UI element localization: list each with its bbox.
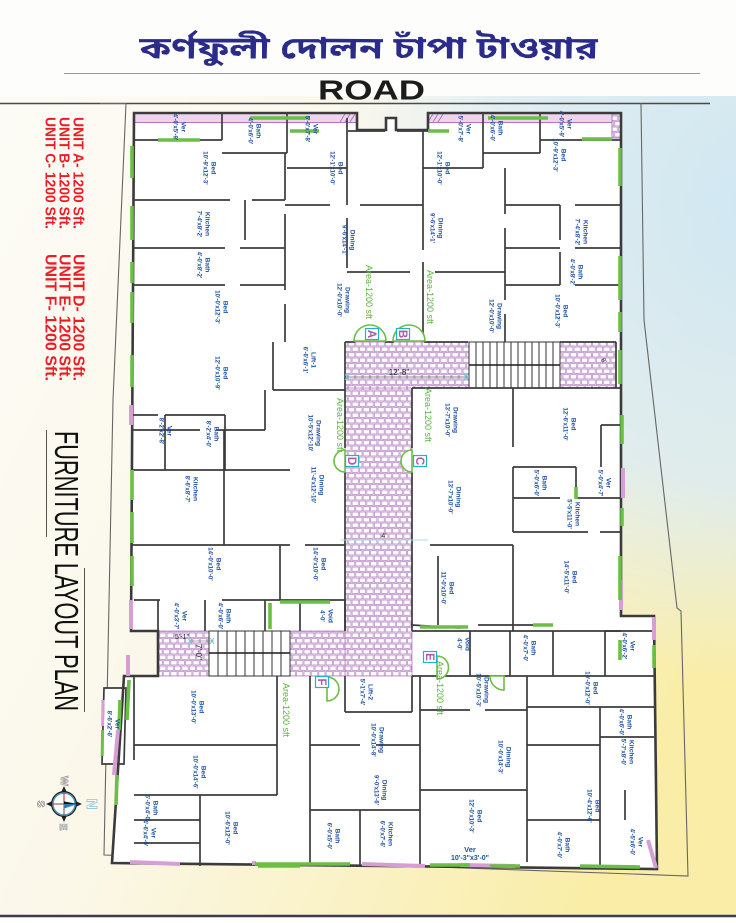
svg-text:Bath: Bath bbox=[541, 476, 548, 491]
svg-text:Dining: Dining bbox=[349, 230, 356, 251]
svg-text:Ver: Ver bbox=[629, 641, 636, 652]
svg-text:7'-4'x8'-2': 7'-4'x8'-2' bbox=[195, 211, 201, 238]
svg-text:4'-0'x5'-9': 4'-0'x5'-9' bbox=[557, 111, 563, 138]
svg-text:S: S bbox=[35, 800, 47, 807]
svg-text:W: W bbox=[58, 776, 70, 786]
svg-text:Ver: Ver bbox=[114, 719, 121, 730]
svg-text:Bed: Bed bbox=[571, 571, 578, 583]
svg-text:10'-0'x14'-6': 10'-0'x14'-6' bbox=[191, 755, 197, 789]
svg-text:Dining: Dining bbox=[318, 475, 325, 496]
svg-text:N: N bbox=[83, 799, 100, 810]
svg-text:Ver: Ver bbox=[566, 119, 573, 130]
svg-text:Ver: Ver bbox=[180, 122, 187, 133]
svg-text:Drawing: Drawing bbox=[483, 677, 490, 703]
svg-text:10'-9'x12'-3': 10'-9'x12'-3' bbox=[551, 138, 557, 172]
svg-text:Bed: Bed bbox=[232, 822, 239, 834]
svg-text:12'-0'x10'-0': 12'-0'x10'-0' bbox=[335, 283, 341, 317]
svg-text:Area-1200 sft: Area-1200 sft bbox=[423, 388, 433, 443]
svg-text:5'-1'x7'-4': 5'-1'x7'-4' bbox=[358, 679, 364, 706]
svg-text:Lift-2: Lift-2 bbox=[367, 684, 374, 700]
svg-text:Area-1200 sft: Area-1200 sft bbox=[364, 265, 374, 320]
svg-text:Bed: Bed bbox=[198, 701, 205, 713]
svg-text:Void: Void bbox=[327, 609, 334, 623]
svg-text:4'-0'x7'-0': 4'-0'x7'-0' bbox=[521, 635, 527, 662]
svg-text:Bed: Bed bbox=[562, 305, 569, 317]
svg-text:UNIT F- 1200 Sft.: UNIT F- 1200 Sft. bbox=[42, 254, 59, 381]
svg-text:6'-0'x7'-6': 6'-0'x7'-6' bbox=[378, 821, 384, 848]
svg-text:10'-5'x10'-3': 10'-5'x10'-3' bbox=[474, 673, 480, 707]
svg-text:10'-5'x12'-10': 10'-5'x12'-10' bbox=[306, 415, 312, 452]
svg-text:10'-0'x13'-0': 10'-0'x13'-0' bbox=[189, 690, 195, 724]
svg-text:12'-0'x10'-3': 12'-0'x10'-3' bbox=[467, 799, 473, 833]
svg-text:14'-0'x10'-0': 14'-0'x10'-0' bbox=[311, 547, 317, 581]
svg-text:13'-7'x10'-0': 13'-7'x10'-0' bbox=[443, 403, 449, 437]
svg-text:4'-5'x6'-0': 4'-5'x6'-0' bbox=[628, 829, 634, 856]
svg-text:4'-0'x6'-0': 4'-0'x6'-0' bbox=[246, 118, 252, 145]
svg-text:Bed: Bed bbox=[320, 558, 327, 570]
svg-text:E: E bbox=[57, 823, 69, 830]
svg-text:11'-0'x10'-0': 11'-0'x10'-0' bbox=[439, 571, 445, 605]
svg-text:Bed: Bed bbox=[210, 162, 217, 174]
svg-text:4'-0'x8'-2': 4'-0'x8'-2' bbox=[195, 252, 201, 279]
svg-text:4': 4' bbox=[381, 533, 386, 540]
svg-text:Bed: Bed bbox=[444, 162, 451, 174]
svg-text:4'-0'x5'-9': 4'-0'x5'-9' bbox=[171, 114, 177, 141]
svg-text:5'-0'x4'-7': 5'-0'x4'-7' bbox=[596, 470, 602, 497]
svg-text:Bath: Bath bbox=[626, 715, 633, 730]
svg-text:Bath: Bath bbox=[334, 829, 341, 844]
svg-text:Kitchen: Kitchen bbox=[387, 822, 394, 846]
svg-text:12'-0'x10'-9': 12'-0'x10'-9' bbox=[213, 356, 219, 390]
svg-text:UNIT C- 1200 Sft.: UNIT C- 1200 Sft. bbox=[42, 117, 58, 229]
svg-text:5'-1": 5'-1" bbox=[175, 634, 189, 641]
svg-text:12'-1'x10'-0': 12'-1'x10'-0' bbox=[328, 151, 334, 185]
svg-text:Area-1200 sft: Area-1200 sft bbox=[435, 661, 445, 716]
svg-text:12'-8": 12'-8" bbox=[389, 368, 410, 377]
svg-text:Bed: Bed bbox=[570, 418, 577, 430]
svg-text:6'-0'x4'-0': 6'-0'x4'-0' bbox=[143, 795, 149, 822]
svg-text:12'-1'x10'-0': 12'-1'x10'-0' bbox=[435, 151, 441, 185]
svg-text:4'-0'x6'-0': 4'-0'x6'-0' bbox=[216, 603, 222, 630]
svg-text:4'-0'x3'-7': 4'-0'x3'-7' bbox=[172, 603, 178, 630]
svg-text:8'-2'x4'-0': 8'-2'x4'-0' bbox=[204, 421, 210, 448]
svg-text:Area-1200 sft: Area-1200 sft bbox=[281, 683, 291, 738]
svg-text:9'-6'x14'-1': 9'-6'x14'-1' bbox=[340, 225, 346, 256]
svg-text:7'-0": 7'-0" bbox=[194, 644, 203, 660]
svg-text:Ver: Ver bbox=[312, 124, 319, 135]
svg-text:Ver: Ver bbox=[150, 828, 157, 839]
svg-text:Kitchen: Kitchen bbox=[582, 220, 589, 244]
svg-text:10'-9'x12'-3': 10'-9'x12'-3' bbox=[201, 151, 207, 185]
svg-text:10'-0'x12'-3': 10'-0'x12'-3' bbox=[213, 290, 219, 324]
svg-text:Kitchen: Kitchen bbox=[204, 212, 211, 236]
svg-text:Bed: Bed bbox=[594, 800, 601, 812]
svg-text:4'-6'x4'-0': 4'-6'x4'-0' bbox=[141, 820, 147, 847]
svg-text:6'-0'x5'-0': 6'-0'x5'-0' bbox=[325, 823, 331, 850]
svg-text:8'-6'x8'-7': 8'-6'x8'-7' bbox=[183, 476, 189, 503]
svg-text:10'-4'x12'-0': 10'-4'x12'-0' bbox=[585, 789, 591, 823]
svg-text:Bed: Bed bbox=[592, 682, 599, 694]
svg-text:Bath: Bath bbox=[152, 801, 159, 816]
svg-text:Dining: Dining bbox=[505, 747, 512, 768]
svg-text:Ver: Ver bbox=[465, 124, 472, 135]
svg-text:Lift-1: Lift-1 bbox=[310, 352, 317, 368]
svg-text:Bath: Bath bbox=[530, 641, 537, 656]
svg-text:10'-3"x3'-0": 10'-3"x3'-0" bbox=[451, 855, 489, 862]
svg-text:7'-4'x8'-2': 7'-4'x8'-2' bbox=[573, 219, 579, 246]
svg-text:Bed: Bed bbox=[448, 582, 455, 594]
svg-text:6'-6'x6'-1': 6'-6'x6'-1' bbox=[301, 347, 307, 374]
svg-text:8'-2'x2'-8': 8'-2'x2'-8' bbox=[157, 418, 163, 445]
svg-text:4'-0': 4'-0' bbox=[455, 638, 461, 650]
svg-text:A: A bbox=[365, 330, 377, 338]
svg-text:4'-0'x6'-0': 4'-0'x6'-0' bbox=[488, 115, 494, 142]
svg-text:Bath: Bath bbox=[255, 124, 262, 139]
svg-text:Ver: Ver bbox=[464, 845, 476, 854]
svg-text:5'-0'x6'-0': 5'-0'x6'-0' bbox=[532, 470, 538, 497]
svg-text:14'-0'x10'-0': 14'-0'x10'-0' bbox=[206, 547, 212, 581]
svg-text:9'-0'x13'-6': 9'-0'x13'-6' bbox=[372, 775, 378, 806]
svg-text:Area-1200 sft: Area-1200 sft bbox=[335, 398, 345, 453]
svg-text:E: E bbox=[423, 653, 435, 661]
svg-text:5'-7'x8'-0': 5'-7'x8'-0' bbox=[619, 739, 625, 766]
svg-text:4'-0'x7'-0': 4'-0'x7'-0' bbox=[555, 832, 561, 859]
svg-text:5'-0'x7'-8': 5'-0'x7'-8' bbox=[456, 116, 462, 143]
svg-text:Bath: Bath bbox=[564, 838, 571, 853]
svg-text:Ver: Ver bbox=[605, 478, 612, 489]
svg-text:Area-1200 sft: Area-1200 sft bbox=[425, 270, 435, 325]
svg-text:Ver: Ver bbox=[637, 837, 644, 848]
svg-text:F: F bbox=[315, 678, 327, 685]
svg-text:Dining: Dining bbox=[381, 780, 388, 801]
svg-text:10'-0'x12'-3': 10'-0'x12'-3' bbox=[553, 294, 559, 328]
svg-text:5'-0'x7'-8': 5'-0'x7'-8' bbox=[303, 116, 309, 143]
svg-text:Drawing: Drawing bbox=[344, 287, 351, 313]
svg-text:Kitchen: Kitchen bbox=[574, 502, 581, 526]
svg-text:Drawing: Drawing bbox=[496, 303, 503, 329]
svg-text:Kitchen: Kitchen bbox=[192, 477, 199, 501]
svg-text:Bath: Bath bbox=[204, 258, 211, 273]
svg-text:Bath: Bath bbox=[225, 609, 232, 624]
svg-text:Ver: Ver bbox=[166, 426, 173, 437]
svg-text:D: D bbox=[345, 457, 357, 465]
svg-text:Bed: Bed bbox=[222, 301, 229, 313]
svg-text:Drawing: Drawing bbox=[378, 727, 385, 753]
svg-text:Bed: Bed bbox=[476, 810, 483, 822]
svg-text:Dining: Dining bbox=[455, 487, 462, 508]
svg-text:C: C bbox=[413, 457, 425, 465]
svg-text:12'-0'x10'-0': 12'-0'x10'-0' bbox=[487, 299, 493, 333]
svg-text:10'-0'x14'-8': 10'-0'x14'-8' bbox=[369, 723, 375, 757]
svg-text:Bed: Bed bbox=[215, 558, 222, 570]
svg-text:Bed: Bed bbox=[200, 766, 207, 778]
svg-text:Drawing: Drawing bbox=[315, 420, 322, 446]
svg-text:Kitchen: Kitchen bbox=[628, 740, 635, 764]
svg-text:13'-7'x10'-0': 13'-7'x10'-0' bbox=[446, 480, 452, 514]
svg-text:10'-0'x12'-0': 10'-0'x12'-0' bbox=[583, 671, 589, 705]
svg-text:FURNITURE LAYOUT PLAN: FURNITURE LAYOUT PLAN bbox=[48, 431, 85, 711]
svg-text:Bed: Bed bbox=[222, 367, 229, 379]
svg-text:5'-5'x11'-0': 5'-5'x11'-0' bbox=[565, 499, 571, 529]
svg-text:ROAD: ROAD bbox=[318, 75, 425, 106]
svg-text:10'-6'x12'-0': 10'-6'x12'-0' bbox=[223, 811, 229, 845]
svg-text:14'-5'x11'-0': 14'-5'x11'-0' bbox=[562, 560, 568, 594]
svg-text:B: B bbox=[396, 330, 408, 338]
svg-text:4'-0'x6'-0': 4'-0'x6'-0' bbox=[617, 709, 623, 736]
svg-text:Dining: Dining bbox=[437, 218, 444, 239]
svg-text:4'-0'x6'-2': 4'-0'x6'-2' bbox=[620, 633, 626, 660]
svg-text:8'-6'x2'-6': 8'-6'x2'-6' bbox=[105, 711, 111, 738]
svg-text:10'-0'x14'-3': 10'-0'x14'-3' bbox=[496, 740, 502, 774]
svg-text:Drawing: Drawing bbox=[452, 407, 459, 433]
svg-text:Bed: Bed bbox=[560, 149, 567, 161]
svg-text:9'-6'x14'-1': 9'-6'x14'-1' bbox=[428, 213, 434, 244]
svg-text:4'-0': 4'-0' bbox=[318, 610, 324, 622]
svg-text:12'-6'x11'-0': 12'-6'x11'-0' bbox=[561, 407, 567, 441]
svg-text:Bath: Bath bbox=[213, 427, 220, 442]
svg-text:Ver: Ver bbox=[181, 611, 188, 622]
svg-text:Void: Void bbox=[464, 637, 471, 651]
svg-text:11'-4'x12'-10': 11'-4'x12'-10' bbox=[309, 467, 315, 504]
svg-text:Bed: Bed bbox=[337, 162, 344, 174]
svg-text:4'-0'x8'-2': 4'-0'x8'-2' bbox=[568, 259, 574, 286]
svg-text:Bath: Bath bbox=[497, 121, 504, 136]
svg-text:Bath: Bath bbox=[577, 265, 584, 280]
